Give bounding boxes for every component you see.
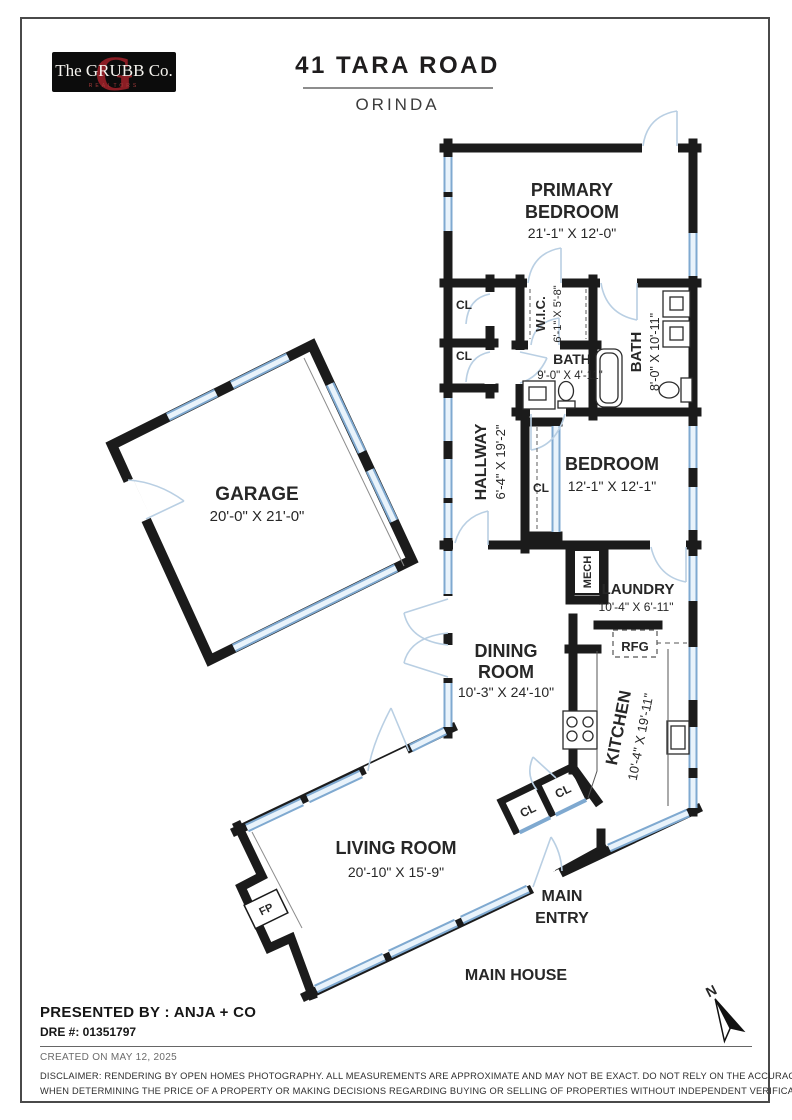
primary-bedroom-label: PRIMARY bbox=[531, 180, 613, 200]
closet-label: CL bbox=[456, 298, 472, 312]
dining-room-label: DINING bbox=[475, 641, 538, 661]
primary-bedroom-dims: 21'-1" X 12'-0" bbox=[528, 225, 616, 241]
main-entry-label: MAIN bbox=[542, 888, 583, 905]
footer-divider bbox=[40, 1046, 752, 1047]
wic-dims: 6'-1" X 5'-8" bbox=[552, 285, 564, 342]
fireplace: FP bbox=[244, 889, 288, 928]
disclaimer-line1: DISCLAIMER: RENDERING BY OPEN HOMES PHOT… bbox=[40, 1069, 754, 1084]
stove bbox=[563, 711, 597, 749]
living-room-label: LIVING ROOM bbox=[336, 838, 457, 858]
primary-bath-label: BATH bbox=[628, 332, 645, 373]
dining-room-dims: 10'-3" X 24'-10" bbox=[458, 684, 554, 700]
wic-label: W.I.C. bbox=[533, 296, 548, 331]
vanity-sinks-primary-bath bbox=[663, 291, 690, 347]
garage-dims: 20'-0" X 21'-0" bbox=[210, 508, 305, 525]
dre-number: DRE #: 01351797 bbox=[40, 1025, 754, 1039]
mech-closet: MECH bbox=[574, 550, 600, 594]
footer: PRESENTED BY : ANJA + CO DRE #: 01351797… bbox=[40, 1004, 754, 1099]
dining-room-label2: ROOM bbox=[478, 662, 534, 682]
refrigerator-label: RFG bbox=[621, 639, 648, 654]
primary-bedroom-label2: BEDROOM bbox=[525, 202, 619, 222]
closet-label: CL bbox=[456, 349, 472, 363]
toilet-primary-bath bbox=[659, 378, 692, 402]
main-house-label: MAIN HOUSE bbox=[465, 967, 568, 984]
garage-label: GARAGE bbox=[215, 484, 298, 505]
closet-label: CL bbox=[518, 801, 539, 821]
primary-bath-dims: 8'-0" X 10'-11" bbox=[648, 313, 662, 391]
hall-bath-dims: 9'-0" X 4'-11" bbox=[537, 370, 602, 382]
hallway-label: HALLWAY bbox=[473, 423, 490, 500]
main-entry-label2: ENTRY bbox=[535, 910, 589, 927]
bedroom-label: BEDROOM bbox=[565, 454, 659, 474]
vanity-sink-hall-bath bbox=[523, 381, 555, 409]
kitchen-sink bbox=[667, 721, 689, 754]
laundry-label: LAUNDRY bbox=[602, 581, 675, 598]
entry-closets: CL CL bbox=[501, 766, 589, 833]
north-label: N bbox=[703, 981, 719, 1000]
disclaimer-line2: WHEN DETERMINING THE PRICE OF A PROPERTY… bbox=[40, 1084, 754, 1099]
toilet-hall-bath bbox=[558, 382, 575, 409]
hall-bath-label: BATH bbox=[553, 351, 591, 367]
closet-label: CL bbox=[533, 481, 549, 495]
floorplan-drawing: CL CL bbox=[0, 0, 792, 1120]
mech-label: MECH bbox=[582, 556, 594, 588]
hallway-dims: 6'-4" X 19'-2" bbox=[493, 424, 508, 499]
presented-by: PRESENTED BY : ANJA + CO bbox=[40, 1004, 754, 1021]
laundry-dims: 10'-4" X 6'-11" bbox=[599, 600, 674, 614]
living-room-dims: 20'-10" X 15'-9" bbox=[348, 864, 444, 880]
created-date: CREATED ON MAY 12, 2025 bbox=[40, 1052, 754, 1063]
closet-label: CL bbox=[553, 781, 574, 801]
bedroom-dims: 12'-1" X 12'-1" bbox=[568, 478, 656, 494]
floorplan-page: { "brand": {"the_word":"The GRUBB Co.","… bbox=[0, 0, 792, 1120]
